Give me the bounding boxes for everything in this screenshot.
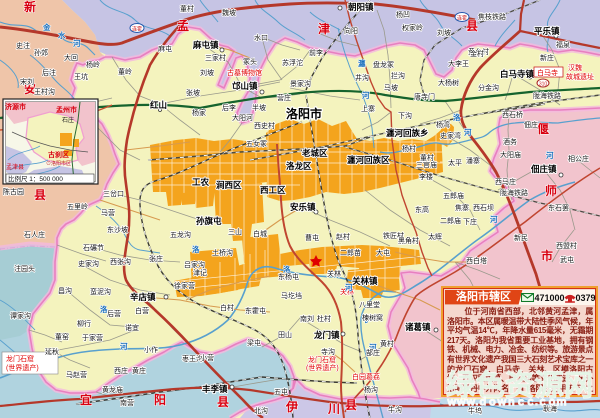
svg-text:土桥沟: 土桥沟: [212, 248, 233, 257]
svg-text:太平: 太平: [448, 158, 462, 167]
svg-text:杨凹: 杨凹: [396, 10, 410, 19]
svg-text:县: 县: [466, 19, 478, 33]
svg-text:川: 川: [327, 402, 340, 416]
svg-text:盘龙冢: 盘龙冢: [373, 60, 394, 69]
svg-text:董村: 董村: [420, 153, 434, 162]
svg-text:权家岭: 权家岭: [402, 23, 423, 32]
svg-text:下沟: 下沟: [398, 111, 412, 120]
svg-text:马赵营: 马赵营: [66, 370, 87, 379]
svg-text:三山: 三山: [228, 227, 242, 236]
svg-text:白营: 白营: [135, 306, 149, 315]
svg-text:洛: 洛: [192, 244, 200, 254]
svg-text:西石桥: 西石桥: [502, 110, 523, 119]
svg-text:上寨: 上寨: [361, 104, 375, 113]
svg-text:西张沟: 西张沟: [110, 257, 131, 266]
svg-text:八里堂: 八里堂: [359, 300, 380, 309]
svg-text:杨岭: 杨岭: [86, 60, 100, 69]
svg-text:杨家: 杨家: [192, 108, 206, 117]
svg-text:瀍河回族乡: 瀍河回族乡: [386, 128, 429, 138]
svg-text:杜村: 杜村: [317, 314, 331, 323]
svg-text:比例尺 1：500 000: 比例尺 1：500 000: [8, 174, 63, 183]
svg-text:张庄: 张庄: [149, 254, 163, 263]
svg-text:黄龙庙: 黄龙庙: [102, 385, 123, 394]
svg-text:济源市: 济源市: [5, 102, 26, 111]
svg-text:史注: 史注: [16, 41, 30, 50]
svg-text:东沙坡: 东沙坡: [107, 225, 128, 234]
svg-text:安乐镇: 安乐镇: [290, 202, 316, 212]
svg-text:井沟: 井沟: [355, 73, 369, 82]
svg-text:汉魏: 汉魏: [568, 63, 582, 72]
svg-text:五里岭: 五里岭: [67, 202, 88, 211]
svg-text:后营: 后营: [107, 309, 121, 318]
svg-text:景家沟: 景家沟: [290, 79, 311, 88]
svg-text:大阳庙: 大阳庙: [500, 150, 521, 159]
svg-text:伊: 伊: [285, 399, 298, 414]
svg-text:石人庄: 石人庄: [24, 230, 45, 239]
svg-text:相公庄: 相公庄: [568, 154, 589, 163]
svg-text:孙旗屯: 孙旗屯: [196, 216, 222, 226]
svg-text:拦沟: 拦沟: [391, 71, 405, 80]
svg-text:焦寨: 焦寨: [455, 203, 469, 212]
svg-text:孟津县: 孟津县: [6, 163, 24, 171]
svg-text:陇海铁路: 陇海铁路: [500, 188, 528, 197]
svg-text:大杨树: 大杨树: [438, 78, 459, 87]
svg-text:市: 市: [541, 248, 553, 263]
svg-text:昌沟: 昌沟: [58, 286, 72, 295]
svg-text:关林镇: 关林镇: [352, 276, 378, 286]
svg-text:师: 师: [545, 183, 557, 198]
svg-text:王坑: 王坑: [74, 72, 88, 81]
svg-text:县: 县: [34, 188, 46, 202]
svg-text:后李: 后李: [222, 103, 236, 112]
svg-text:丰李镇: 丰李镇: [202, 384, 228, 394]
svg-text:马坡: 马坡: [384, 83, 398, 92]
svg-text:白城: 白城: [253, 229, 267, 238]
svg-text:瀍: 瀍: [358, 58, 366, 68]
svg-text:宋刘: 宋刘: [20, 77, 34, 86]
svg-text:史家沟: 史家沟: [78, 259, 99, 268]
svg-text:董村: 董村: [180, 4, 194, 13]
svg-text:朝阳镇: 朝阳镇: [348, 2, 374, 12]
svg-text:三岔口: 三岔口: [103, 189, 124, 198]
svg-text:龙门石窟: 龙门石窟: [308, 355, 336, 364]
svg-text:平乐镇: 平乐镇: [534, 26, 560, 36]
svg-text:杨沟: 杨沟: [364, 385, 378, 394]
svg-text:白村: 白村: [220, 303, 234, 312]
svg-text:工农: 工农: [192, 177, 210, 187]
svg-text:半坡: 半坡: [252, 103, 266, 112]
svg-text:西马庄: 西马庄: [495, 177, 516, 186]
svg-text:诺宜: 诺宜: [125, 323, 139, 332]
svg-text:洛: 洛: [283, 264, 291, 274]
svg-text:邙山镇: 邙山镇: [232, 81, 258, 91]
svg-text:佃庄: 佃庄: [524, 120, 538, 129]
svg-text:河: 河: [120, 341, 128, 351]
svg-text:曹屯: 曹屯: [305, 233, 319, 242]
svg-text:龙门镇: 龙门镇: [313, 330, 340, 340]
svg-text:河: 河: [490, 214, 498, 224]
svg-text:梁屯: 梁屯: [247, 338, 261, 347]
svg-text:佃庄镇: 佃庄镇: [530, 164, 557, 174]
svg-text:楝树窝: 楝树窝: [362, 313, 383, 322]
svg-text:津记: 津记: [193, 269, 207, 277]
svg-text:黄村: 黄村: [380, 339, 394, 348]
svg-text:西白塔: 西白塔: [466, 256, 487, 265]
svg-text:河: 河: [546, 150, 554, 160]
svg-text:洛阳市: 洛阳市: [286, 106, 322, 121]
svg-text:五龙沟: 五龙沟: [170, 230, 191, 239]
svg-text:白园葛荔: 白园葛荔: [352, 372, 380, 381]
svg-text:阳: 阳: [154, 392, 166, 407]
svg-text:东杨屯: 东杨屯: [278, 272, 299, 281]
svg-text:西庄: 西庄: [114, 366, 128, 375]
svg-text:杨村: 杨村: [402, 144, 416, 153]
svg-text:蛮泥沟: 蛮泥沟: [90, 287, 111, 296]
svg-text:潘寨: 潘寨: [466, 156, 480, 165]
svg-text:大屯: 大屯: [376, 248, 390, 257]
svg-text:大李王: 大李王: [448, 59, 469, 68]
svg-text:小营: 小营: [200, 353, 214, 362]
svg-text:洛: 洛: [453, 112, 461, 122]
svg-text:三家村: 三家村: [205, 53, 226, 62]
svg-text:牛沟: 牛沟: [388, 405, 402, 414]
svg-text:陇海铁路: 陇海铁路: [533, 91, 561, 100]
svg-text:白马寺镇: 白马寺镇: [500, 69, 535, 79]
svg-text:洛龙区: 洛龙区: [286, 161, 312, 171]
svg-text:河: 河: [464, 127, 472, 137]
svg-text:麻屯: 麻屯: [158, 44, 172, 53]
svg-text:谭家沟: 谭家沟: [10, 311, 31, 320]
svg-text:北沟: 北沟: [254, 406, 268, 415]
svg-text:二郎庙: 二郎庙: [440, 216, 461, 225]
svg-text:苏浮沱: 苏浮沱: [282, 58, 303, 67]
svg-text:董窑: 董窑: [55, 332, 69, 341]
svg-text:后注: 后注: [42, 68, 56, 77]
svg-text:古墓博物馆: 古墓博物馆: [227, 68, 262, 77]
svg-text:小作: 小作: [144, 345, 158, 354]
svg-text:柳行: 柳行: [77, 319, 91, 328]
svg-text:西史村: 西史村: [254, 121, 275, 130]
svg-text:延秋: 延秋: [45, 347, 59, 356]
svg-text:河: 河: [73, 38, 81, 48]
svg-text:孙郊: 孙郊: [34, 48, 48, 57]
svg-text:黄庄: 黄庄: [132, 366, 146, 375]
svg-text:瀍河回族区: 瀍河回族区: [347, 155, 390, 165]
svg-text:红山: 红山: [150, 100, 167, 110]
svg-text:麻屯镇: 麻屯镇: [192, 40, 219, 50]
svg-text:李楼: 李楼: [419, 172, 433, 181]
svg-text:孟: 孟: [177, 18, 189, 33]
svg-text:徐家营: 徐家营: [174, 281, 195, 290]
svg-text:津: 津: [318, 21, 330, 36]
svg-text:涧西区: 涧西区: [216, 180, 242, 190]
svg-text:310: 310: [539, 82, 548, 88]
svg-text:酒务: 酒务: [503, 137, 517, 146]
svg-text:大阳河: 大阳河: [232, 113, 253, 122]
svg-text:新民: 新民: [514, 233, 528, 242]
svg-text:寺沟: 寺沟: [321, 347, 335, 356]
svg-text:(世界遗产): (世界遗产): [6, 363, 39, 372]
svg-text:老城区: 老城区: [301, 148, 328, 158]
svg-text:南营: 南营: [120, 398, 134, 407]
svg-text:五郎庙: 五郎庙: [443, 191, 464, 200]
svg-text:杨湾: 杨湾: [436, 120, 450, 129]
svg-text:刘坡: 刘坡: [437, 28, 451, 37]
svg-text:新: 新: [24, 0, 36, 14]
svg-text:前李: 前李: [309, 48, 323, 57]
svg-text:新庄: 新庄: [540, 53, 554, 62]
svg-text:诸葛镇: 诸葛镇: [405, 322, 431, 332]
svg-text:吕家沟: 吕家沟: [184, 260, 205, 269]
svg-text:东石罢: 东石罢: [548, 203, 569, 212]
svg-text:分金沟: 分金沟: [478, 83, 499, 92]
svg-text:金: 金: [42, 22, 51, 32]
svg-text:注园头: 注园头: [14, 264, 35, 273]
svg-text:向阳: 向阳: [344, 26, 358, 35]
svg-text:河: 河: [362, 90, 370, 100]
svg-text:史家湾: 史家湾: [440, 131, 461, 140]
svg-text:金村: 金村: [470, 49, 484, 58]
svg-text:马圪垱: 马圪垱: [281, 291, 302, 300]
svg-text:郜庄: 郜庄: [366, 348, 380, 357]
svg-text:南刘: 南刘: [300, 314, 314, 323]
svg-text:唐寺门: 唐寺门: [414, 92, 435, 101]
svg-text:太辉: 太辉: [428, 232, 442, 241]
svg-text:县: 县: [345, 398, 357, 412]
svg-text:下庄: 下庄: [463, 217, 477, 226]
svg-text:二郎苗: 二郎苗: [340, 248, 361, 257]
svg-text:黑角村: 黑角村: [398, 236, 419, 245]
svg-text:⊙洛阳市区: ⊙洛阳市区: [46, 160, 71, 167]
svg-text:西工区: 西工区: [260, 185, 286, 195]
svg-text:大回: 大回: [64, 53, 78, 62]
svg-text:马营: 马营: [101, 208, 115, 217]
svg-text:五女冢: 五女冢: [246, 139, 267, 148]
svg-text:县: 县: [217, 395, 229, 409]
svg-text:田山: 田山: [278, 330, 292, 339]
svg-text:于家营: 于家营: [82, 333, 103, 342]
svg-text:陈古园: 陈古园: [3, 187, 24, 196]
svg-text:西石坝: 西石坝: [473, 203, 494, 212]
svg-text:石碾节: 石碾节: [83, 244, 104, 252]
svg-text:辛店镇: 辛店镇: [130, 292, 156, 302]
svg-text:张坡: 张坡: [186, 88, 200, 97]
svg-text:董岭: 董岭: [118, 67, 132, 76]
svg-text:白马寺: 白马寺: [537, 68, 558, 77]
svg-text:福泉: 福泉: [556, 40, 570, 49]
svg-text:偃: 偃: [537, 121, 549, 136]
svg-text:赵村: 赵村: [336, 232, 350, 241]
svg-text:关林: 关林: [327, 269, 341, 278]
svg-text:故城遗址: 故城遗址: [566, 72, 594, 81]
svg-text:石庄: 石庄: [62, 116, 74, 124]
svg-text:魏坡: 魏坡: [222, 8, 236, 17]
svg-text:孟州市: 孟州市: [56, 105, 77, 114]
svg-text:古刹区: 古刹区: [48, 150, 69, 159]
svg-text:河: 河: [345, 282, 353, 292]
svg-text:西盟村: 西盟村: [556, 241, 577, 250]
svg-text:五屯: 五屯: [274, 387, 288, 396]
svg-text:(世界遗产): (世界遗产): [306, 363, 339, 372]
svg-text:龙门石窟: 龙门石窟: [6, 354, 34, 363]
svg-text:营庄: 营庄: [277, 93, 291, 102]
svg-text:刘坡: 刘坡: [200, 68, 214, 77]
svg-text:东高: 东高: [415, 205, 429, 214]
svg-text:武屯: 武屯: [560, 255, 574, 264]
svg-text:冢头: 冢头: [243, 57, 257, 66]
svg-text:焦枝铁路: 焦枝铁路: [478, 12, 506, 21]
svg-text:水: 水: [58, 30, 66, 40]
svg-text:宜: 宜: [80, 392, 92, 407]
svg-text:东霍屯: 东霍屯: [245, 306, 266, 315]
svg-text:王村沟: 王村沟: [34, 87, 55, 96]
svg-text:水口: 水口: [254, 33, 268, 42]
svg-text:连霍: 连霍: [132, 26, 142, 33]
